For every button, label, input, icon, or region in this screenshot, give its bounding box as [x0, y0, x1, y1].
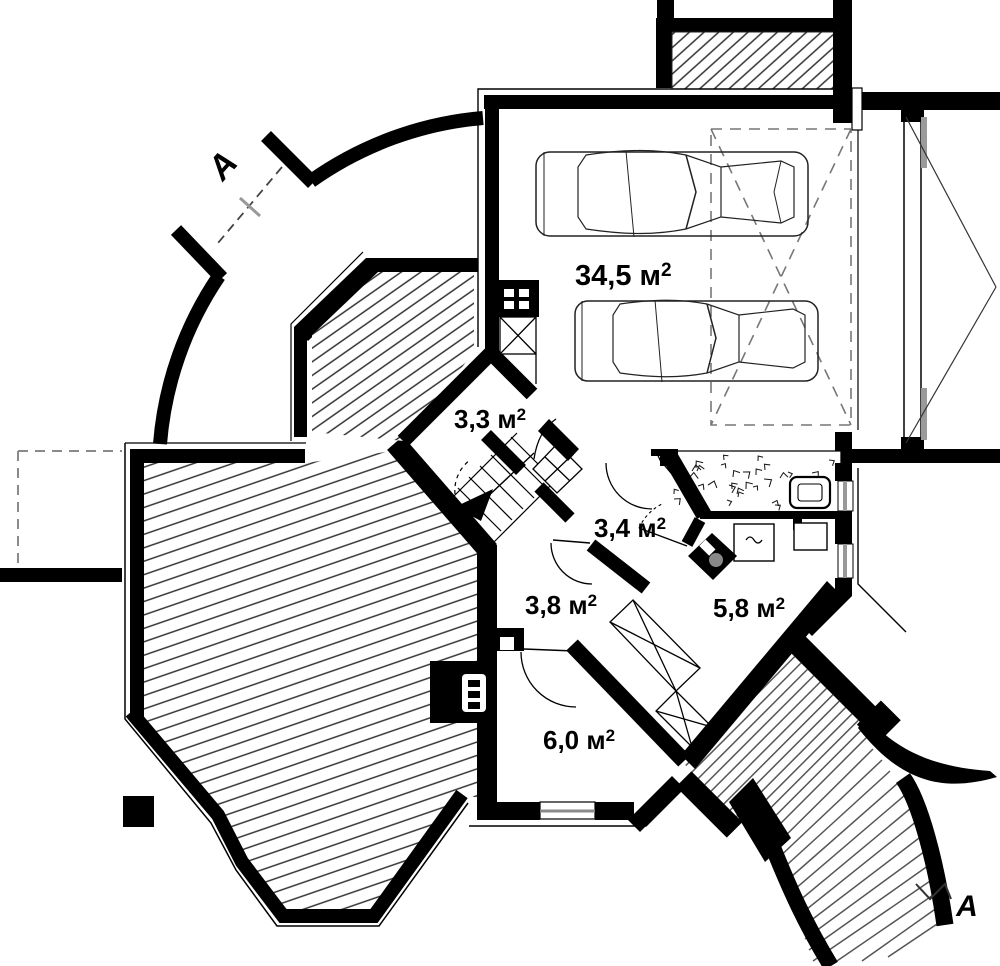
svg-text:3,8 м2: 3,8 м2 — [525, 590, 597, 620]
svg-text:5,8 м2: 5,8 м2 — [713, 593, 785, 623]
svg-text:34,5 м2: 34,5 м2 — [575, 260, 672, 292]
svg-text:3,3 м2: 3,3 м2 — [454, 404, 526, 434]
svg-text:A: A — [955, 890, 978, 923]
svg-text:3,4 м2: 3,4 м2 — [594, 513, 666, 543]
svg-text:6,0 м2: 6,0 м2 — [543, 725, 615, 755]
